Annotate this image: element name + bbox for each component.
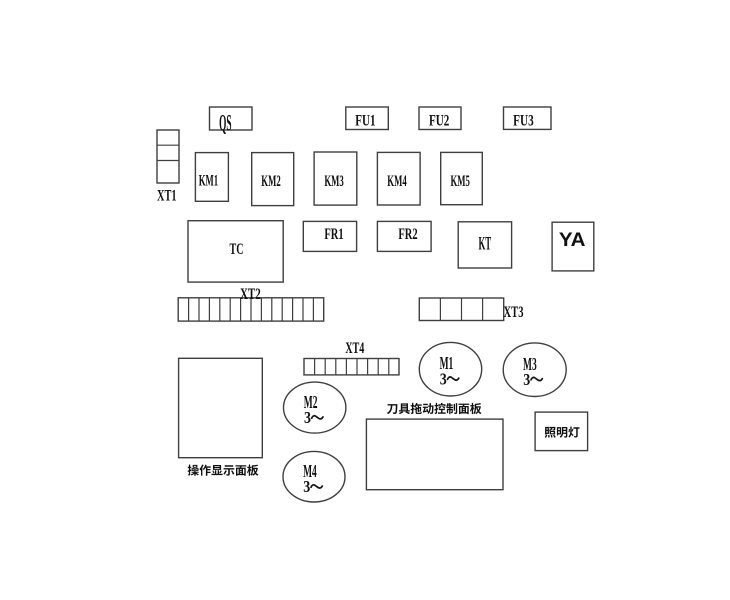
svg-text:3: 3	[523, 370, 530, 389]
svg-text:3: 3	[303, 477, 310, 496]
svg-text:KM4: KM4	[387, 173, 407, 190]
svg-text:KM3: KM3	[324, 173, 344, 190]
svg-text:FU3: FU3	[513, 112, 534, 129]
svg-text:KT: KT	[478, 235, 491, 255]
svg-text:TC: TC	[229, 241, 243, 258]
svg-text:FU2: FU2	[429, 112, 450, 129]
svg-text:XT1: XT1	[157, 187, 177, 204]
svg-text:KM1: KM1	[199, 173, 218, 190]
svg-text:FR1: FR1	[324, 226, 343, 243]
svg-text:FR2: FR2	[398, 226, 418, 243]
svg-text:KM5: KM5	[451, 173, 471, 190]
svg-text:3: 3	[304, 408, 311, 427]
svg-text:XT4: XT4	[345, 340, 364, 357]
svg-text:FU1: FU1	[355, 112, 375, 129]
svg-text:3: 3	[440, 369, 447, 388]
svg-text:XT2: XT2	[240, 286, 261, 303]
svg-text:XT3: XT3	[504, 304, 524, 321]
svg-text:KM2: KM2	[261, 173, 281, 190]
svg-text:QS: QS	[219, 111, 231, 137]
svg-text:YA: YA	[559, 230, 586, 251]
